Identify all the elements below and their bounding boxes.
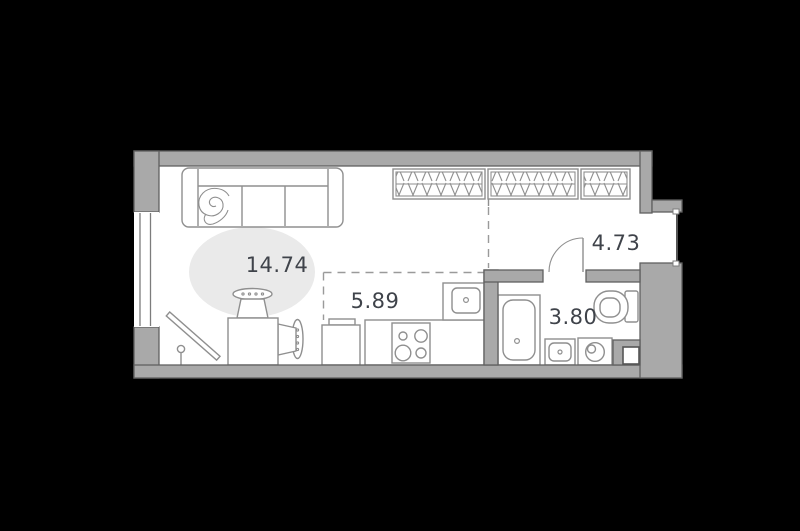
fridge-icon xyxy=(322,325,360,365)
wardrobe-icons xyxy=(393,169,630,199)
wardrobe-icon xyxy=(488,169,578,199)
wall-right-lower xyxy=(640,263,682,378)
table-icon xyxy=(228,318,278,365)
vent-shaft-icon xyxy=(623,347,639,364)
room-label-hallway: 4.73 xyxy=(592,231,641,255)
chair-seat-icon xyxy=(237,299,268,318)
wall-bathroom-top-right xyxy=(586,270,640,282)
wardrobe-icon xyxy=(581,169,630,199)
wall-bottom xyxy=(134,365,682,378)
window-icon xyxy=(134,212,159,327)
wall-top xyxy=(134,151,652,166)
room-label-bathroom: 3.80 xyxy=(549,305,598,329)
chair-seat-icon xyxy=(278,324,296,355)
room-label-living: 14.74 xyxy=(246,253,309,277)
room-label-kitchen: 5.89 xyxy=(351,289,400,313)
wall-left-upper xyxy=(134,151,159,212)
floor-plan-drawing: 14.74 5.89 4.73 3.80 xyxy=(0,0,800,531)
wall-bathroom-top-left xyxy=(484,270,543,282)
wall-bathroom-left xyxy=(484,270,498,365)
wardrobe-icon xyxy=(393,169,485,199)
floor-plan: 14.74 5.89 4.73 3.80 xyxy=(0,0,800,531)
entrance-niche-floor xyxy=(640,212,677,264)
fridge-door-icon xyxy=(329,319,355,325)
chair-back-icon xyxy=(233,289,272,300)
sofa-icon xyxy=(182,168,343,227)
toilet-icon xyxy=(594,291,628,323)
wall-right-upper xyxy=(640,151,652,213)
